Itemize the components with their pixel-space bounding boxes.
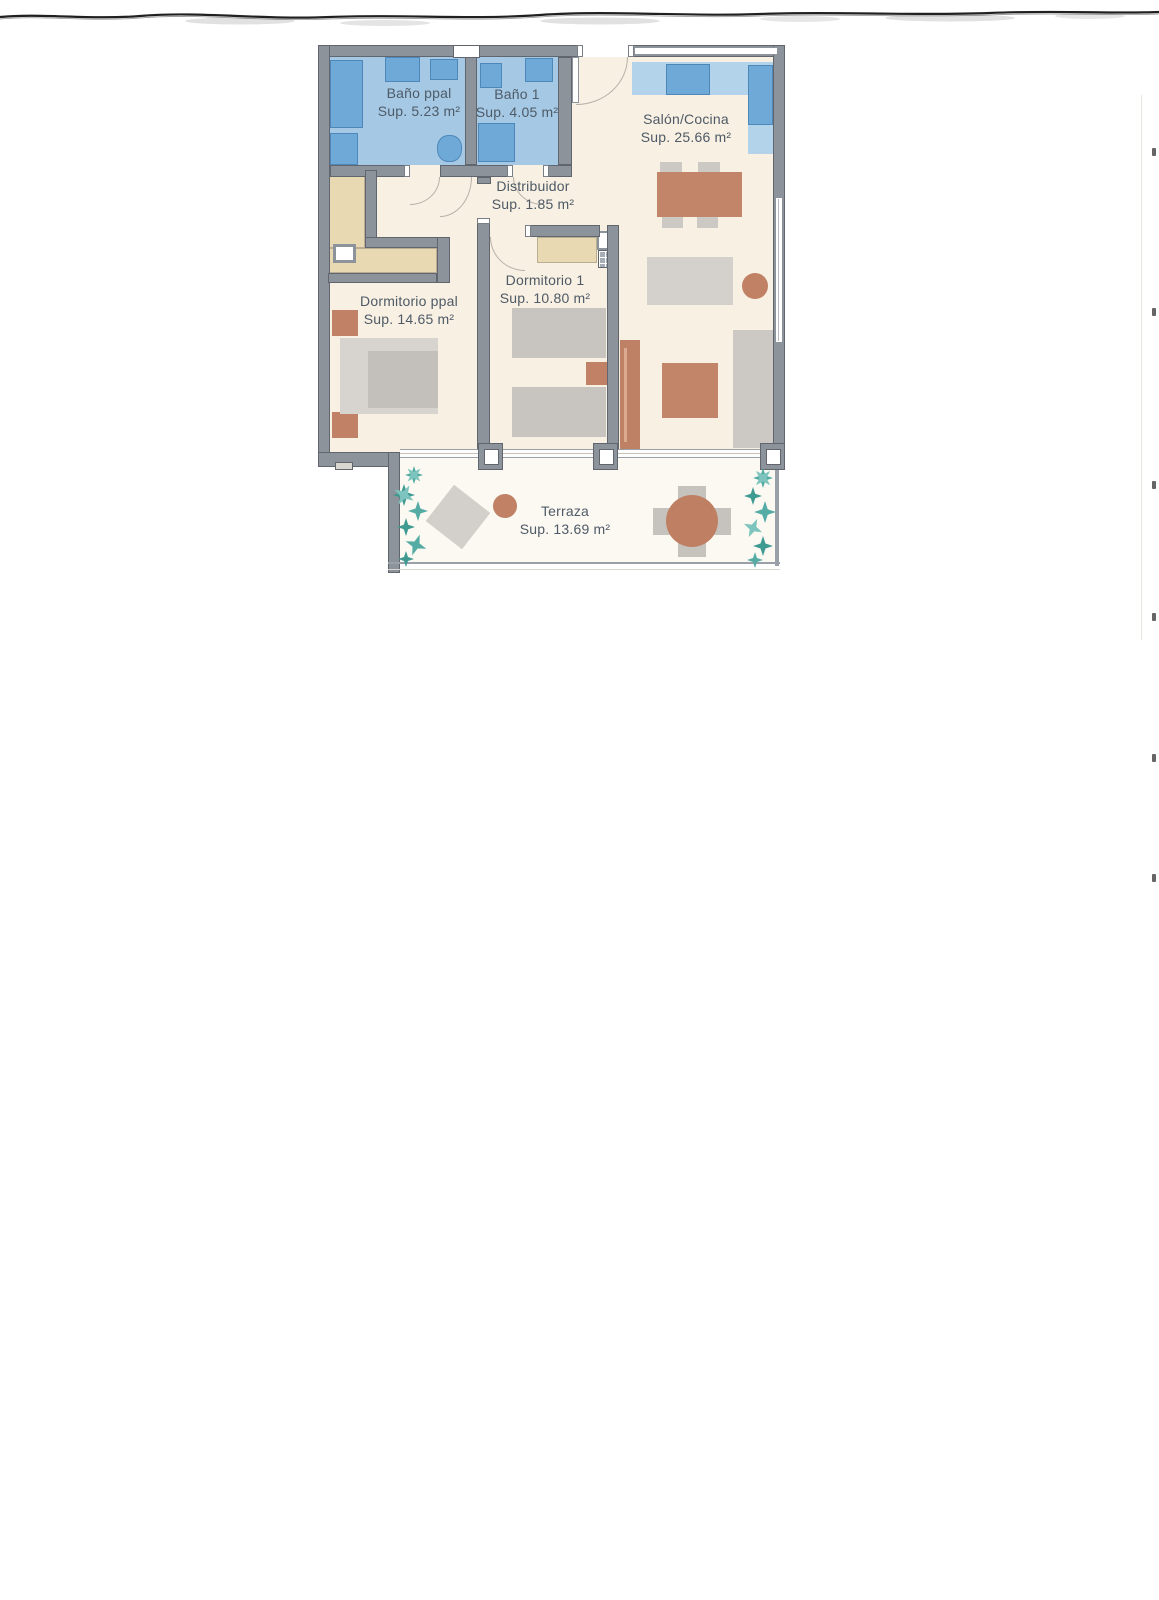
wardrobe (537, 237, 597, 263)
wall-top-left (318, 45, 583, 57)
dining-chair (697, 216, 718, 228)
room-name: Distribuidor (492, 177, 575, 195)
terrace-table (666, 495, 718, 547)
plants-left (392, 463, 436, 569)
room-name: Salón/Cocina (641, 110, 732, 128)
bath-counter-ppal (330, 133, 358, 165)
room-label-dormitorio-1: Dormitorio 1 Sup. 10.80 m² (500, 271, 591, 307)
door-jamb (543, 165, 549, 177)
room-label-salon-cocina: Salón/Cocina Sup. 25.66 m² (641, 110, 732, 146)
room-area: Sup. 5.23 m² (378, 102, 461, 120)
floor-plan: Baño ppal Sup. 5.23 m² Baño 1 Sup. 4.05 … (318, 45, 785, 580)
door-jamb (577, 45, 583, 57)
room-label-dormitorio-ppal: Dormitorio ppal Sup. 14.65 m² (360, 292, 458, 328)
window-glass-line (778, 199, 779, 341)
room-name: Terraza (520, 502, 611, 520)
dresser (333, 244, 356, 263)
terrace-slider (503, 449, 593, 458)
wall-dorm1-top (525, 225, 600, 237)
bed-1 (512, 308, 606, 358)
wall-bath-bottom (440, 165, 513, 177)
room-label-bano-1: Baño 1 Sup. 4.05 m² (476, 85, 559, 121)
sink-bath1 (525, 58, 553, 82)
wardrobe (328, 170, 365, 248)
tv-unit-detail (624, 348, 627, 442)
door-jamb (628, 45, 634, 57)
room-area: Sup. 13.69 m² (520, 520, 611, 538)
nightstand (586, 362, 607, 385)
scan-mark (1152, 613, 1156, 621)
scanned-page: Baño ppal Sup. 5.23 m² Baño 1 Sup. 4.05 … (0, 0, 1159, 1600)
wall-bath1-right (558, 57, 572, 165)
kitchen-appliance (666, 64, 710, 95)
room-area: Sup. 4.05 m² (476, 103, 559, 121)
kitchen-appliance (748, 65, 773, 125)
nightstand (332, 310, 358, 336)
shower-ppal (330, 60, 363, 128)
terrace-railing-shadow (388, 569, 780, 570)
wall-closet (437, 237, 450, 283)
room-label-distribuidor: Distribuidor Sup. 1.85 m² (492, 177, 575, 213)
room-area: Sup. 10.80 m² (500, 289, 591, 307)
bed-1 (512, 387, 606, 437)
bath-cabinet-ppal (430, 59, 458, 80)
nightstand (332, 412, 358, 438)
wall-left (318, 45, 330, 467)
terrace-slider (400, 449, 478, 458)
side-table (742, 273, 768, 299)
wall-dorm-divider (477, 218, 490, 452)
salon-window-right (775, 197, 783, 343)
sofa-right (733, 330, 773, 448)
plants-right (739, 466, 783, 570)
scan-mark (1152, 148, 1156, 156)
pillar (478, 443, 503, 470)
room-name: Dormitorio 1 (500, 271, 591, 289)
salon-window-top (634, 47, 778, 55)
wall-bottom-dormppal (318, 452, 397, 467)
bathroom-window (453, 45, 480, 58)
room-label-terraza: Terraza Sup. 13.69 m² (520, 502, 611, 538)
dining-table (657, 172, 742, 217)
toilet-ppal (437, 135, 462, 162)
scan-mark (1152, 874, 1156, 882)
terrace-side-table (493, 494, 517, 518)
scan-mark (1152, 754, 1156, 762)
door-jamb (507, 165, 513, 177)
room-name: Dormitorio ppal (360, 292, 458, 310)
door-jamb (477, 218, 490, 224)
room-area: Sup. 25.66 m² (641, 128, 732, 146)
scan-mark (1152, 481, 1156, 489)
door-jamb (404, 165, 410, 177)
wall-dorm1-right (607, 225, 619, 452)
sink-ppal (385, 57, 420, 82)
torn-paper-edge (0, 0, 1159, 38)
dining-chair (662, 216, 683, 228)
bed-ppal-cover (368, 351, 438, 408)
wall-stub (477, 177, 491, 184)
coffee-table (662, 363, 718, 418)
wall-notch (335, 462, 353, 470)
shower-bath1 (478, 123, 515, 162)
terrace-railing (388, 562, 780, 564)
room-name: Baño ppal (378, 84, 461, 102)
scan-edge-line (1141, 95, 1142, 640)
sofa (647, 257, 733, 305)
pillar (593, 443, 618, 470)
wall-closet (328, 273, 437, 283)
room-area: Sup. 1.85 m² (492, 195, 575, 213)
door-jamb (525, 225, 531, 237)
tv-unit (620, 340, 640, 450)
room-label-bano-ppal: Baño ppal Sup. 5.23 m² (378, 84, 461, 120)
terrace-slider (618, 449, 760, 458)
room-name: Baño 1 (476, 85, 559, 103)
scan-mark (1152, 308, 1156, 316)
room-area: Sup. 14.65 m² (360, 310, 458, 328)
